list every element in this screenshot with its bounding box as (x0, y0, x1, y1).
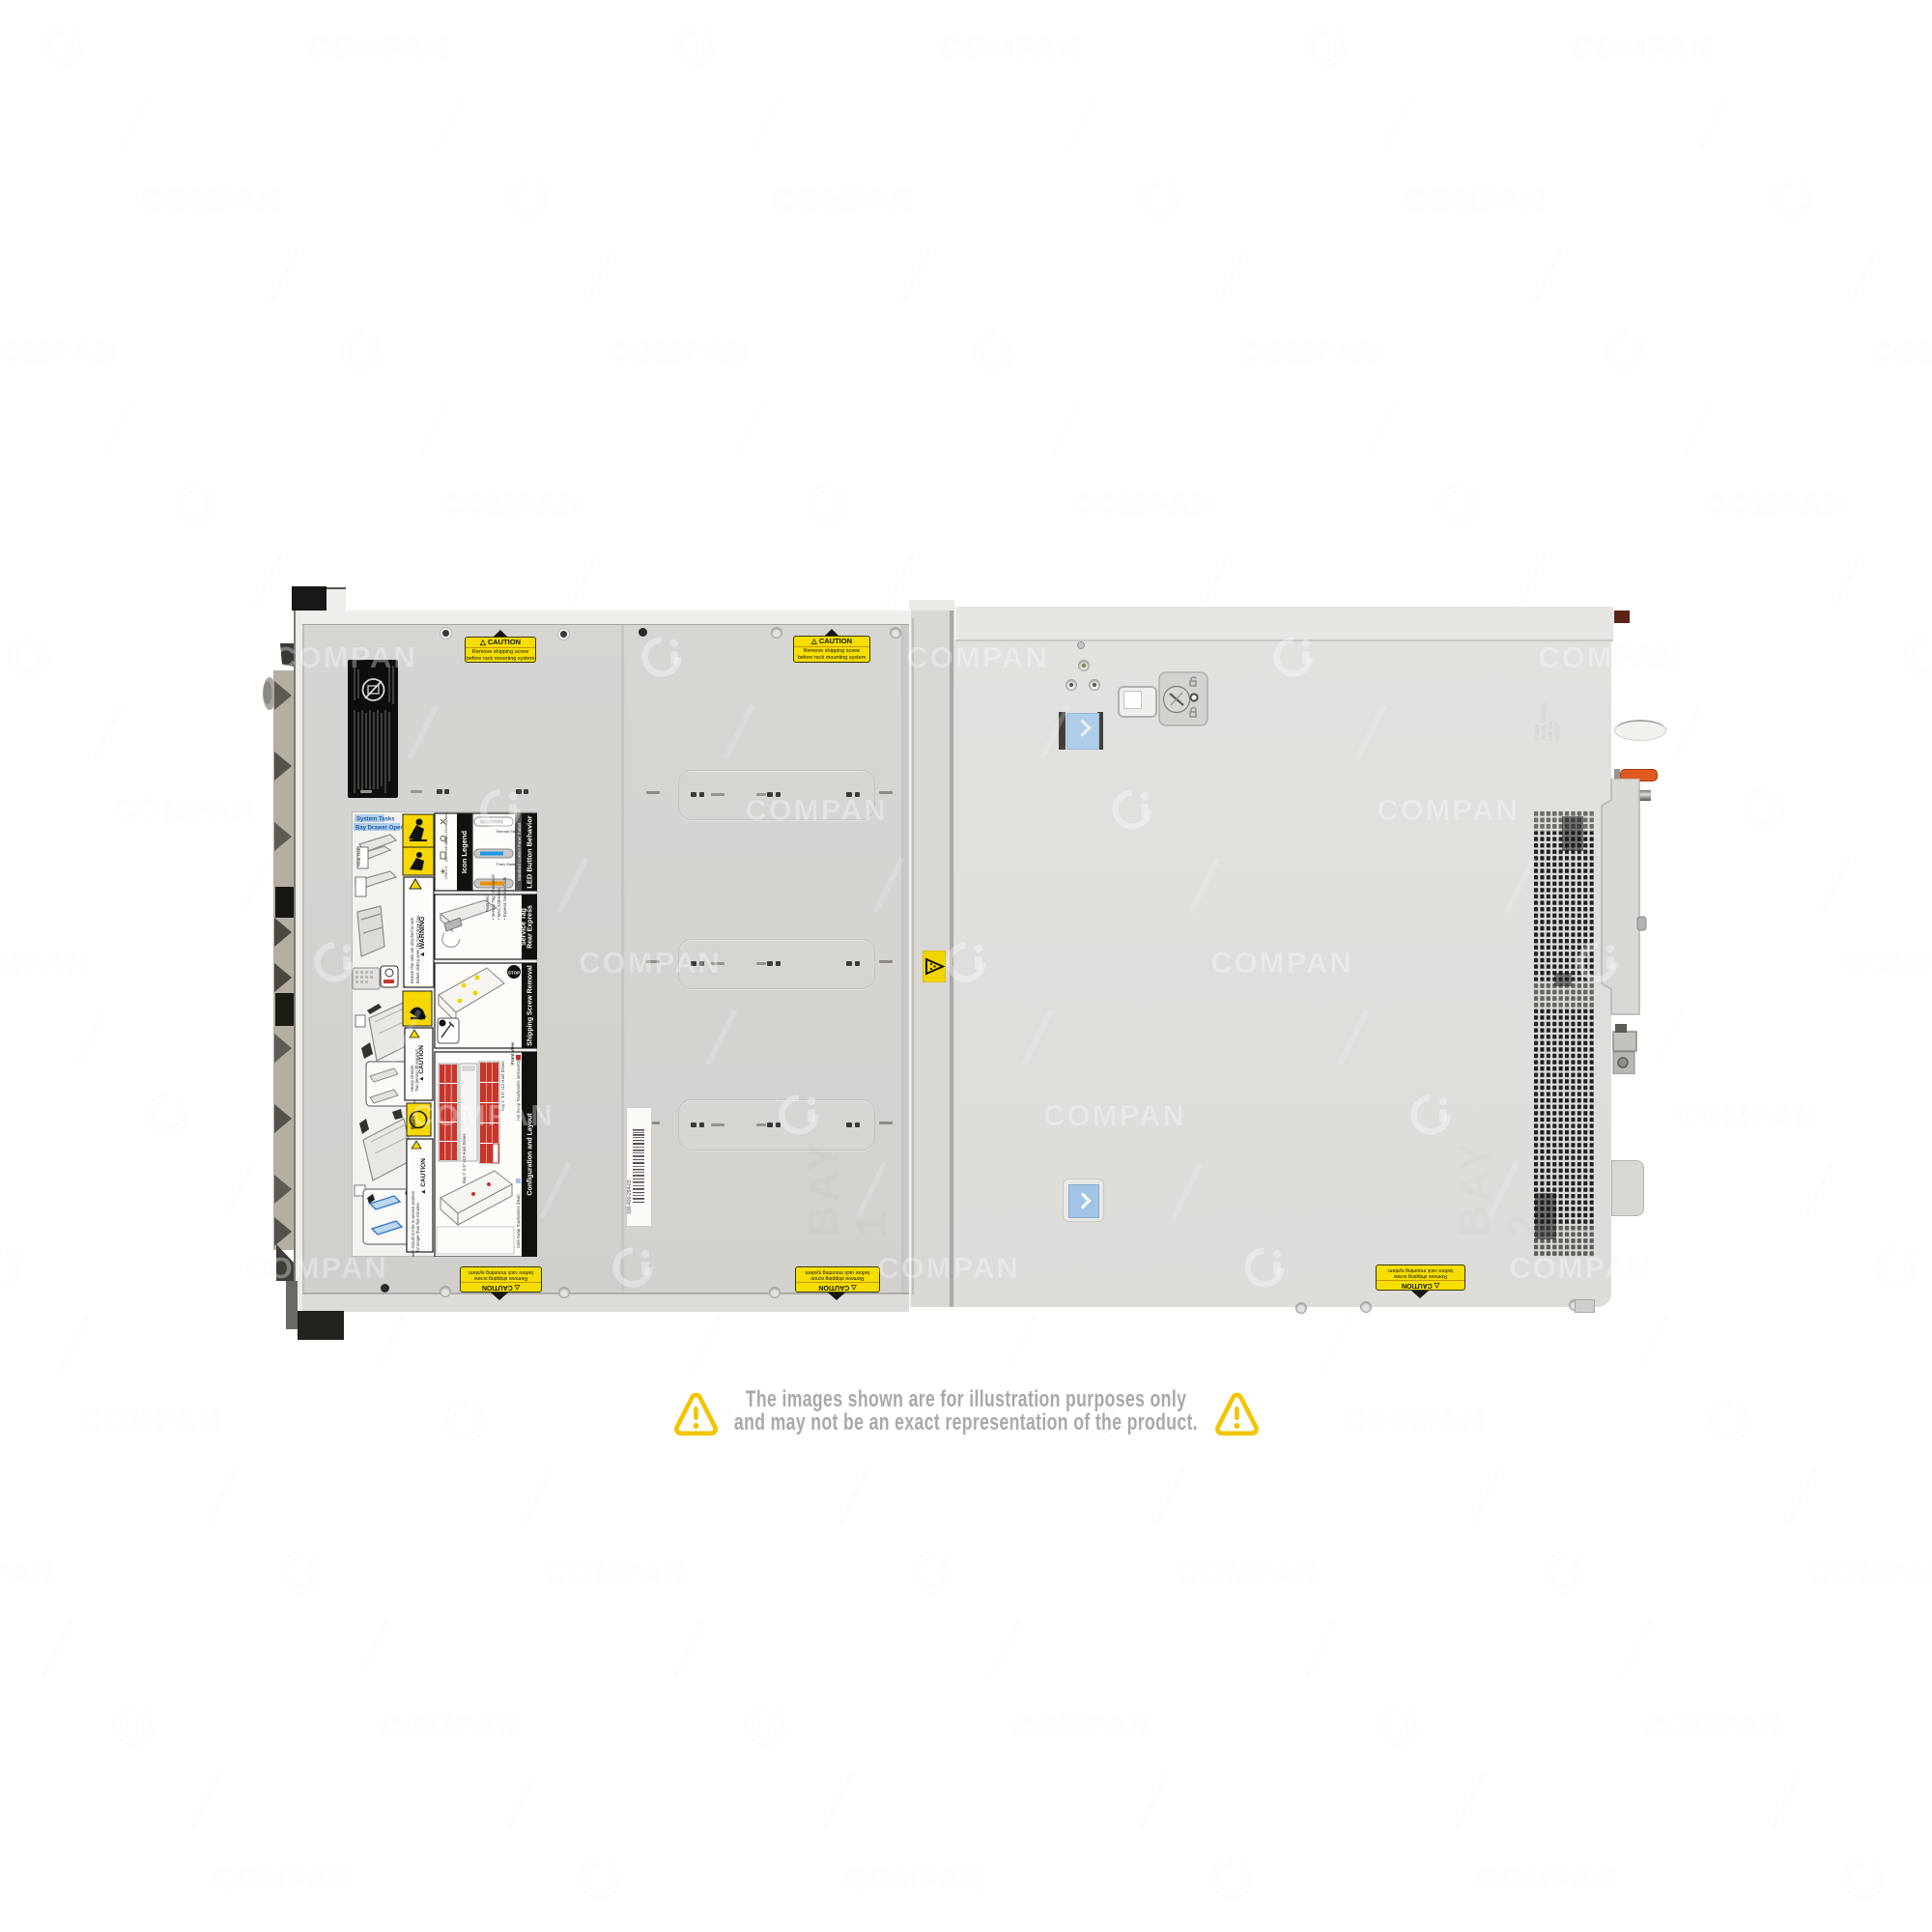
svg-text:USB 2.0: USB 2.0 (444, 867, 448, 879)
svg-text:Configuration and Layout: Configuration and Layout (527, 1113, 534, 1196)
svg-text:Two person lift required.: Two person lift required. (414, 1048, 419, 1092)
svg-text:5min: 5min (412, 1116, 417, 1129)
svg-text:Rear Rail: Rear Rail (356, 848, 361, 867)
svg-text:• MAC Addresses: • MAC Addresses (497, 888, 501, 920)
svg-text:100-400-294-03: 100-400-294-03 (627, 1179, 633, 1214)
svg-text:▲ CAUTION: ▲ CAUTION (418, 1045, 425, 1082)
svg-text:Normal State: Normal State (497, 829, 520, 834)
svg-text:• Service Tag • Password: • Service Tag • Password (491, 874, 496, 920)
svg-text:STOP: STOP (508, 971, 520, 976)
svg-text:LED Button Behavior: LED Button Behavior (526, 815, 534, 888)
svg-text:System ID: System ID (444, 811, 448, 824)
svg-text:• Express Service Code: • Express Service Code (502, 876, 507, 920)
svg-text:before sliding open the hard d: before sliding open the hard drive bay. (415, 915, 420, 983)
svg-text:▲ CAUTION: ▲ CAUTION (420, 1158, 427, 1195)
svg-text:Bay 2: 3.5" x12 Hard Drives: Bay 2: 3.5" x12 Hard Drives (462, 1133, 467, 1183)
svg-text:▲ WARNING: ▲ WARNING (419, 916, 426, 957)
svg-text:Fash State: Fash State (497, 862, 516, 867)
svg-text:Ensure that rails are attached: Ensure that rails are attached to rack (410, 917, 414, 983)
svg-text:Front View: Front View (510, 1042, 515, 1065)
svg-text:Cold Swap Touchpoints (blue): Cold Swap Touchpoints (blue) (516, 1194, 521, 1248)
svg-text:Service Tag: Service Tag (521, 908, 527, 946)
svg-text:(Micro-AB USB): (Micro-AB USB) (444, 837, 448, 862)
svg-text:Hot Swap Touchpoints (terracot: Hot Swap Touchpoints (terracotta) (516, 1059, 521, 1121)
svg-text:for longer than five minutes.: for longer than five minutes. (415, 1202, 420, 1252)
svg-text:Icon Legend: Icon Legend (460, 830, 469, 873)
svg-text:Shipping Screw Removal: Shipping Screw Removal (527, 965, 534, 1046)
svg-text:Rear Express: Rear Express (527, 905, 534, 949)
svg-text:Bay 1: 3.5" x12 Hard Drives: Bay 1: 3.5" x12 Hard Drives (500, 1061, 505, 1111)
svg-text:Features:: Features: (485, 895, 490, 912)
svg-text:System Tasks: System Tasks (356, 817, 395, 823)
